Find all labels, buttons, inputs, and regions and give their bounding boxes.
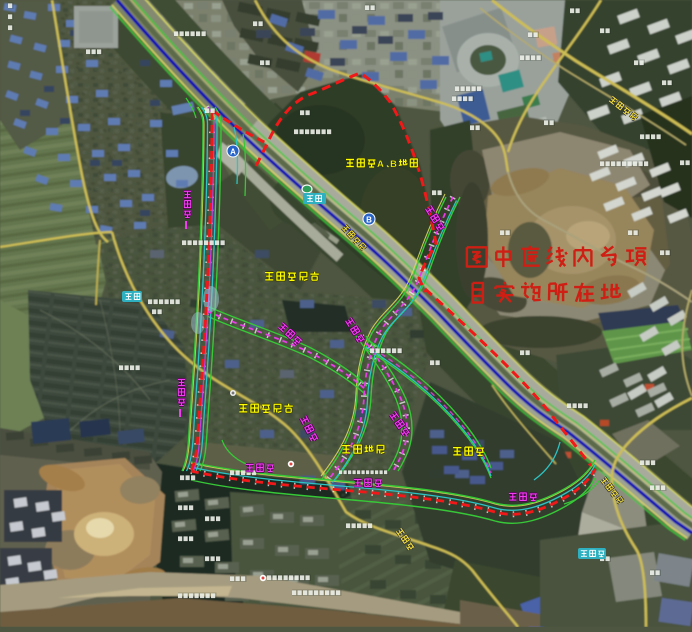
- svg-text:B: B: [390, 159, 397, 170]
- svg-text:A: A: [377, 159, 384, 170]
- svg-text:B: B: [366, 216, 372, 225]
- svg-text:A: A: [230, 148, 236, 157]
